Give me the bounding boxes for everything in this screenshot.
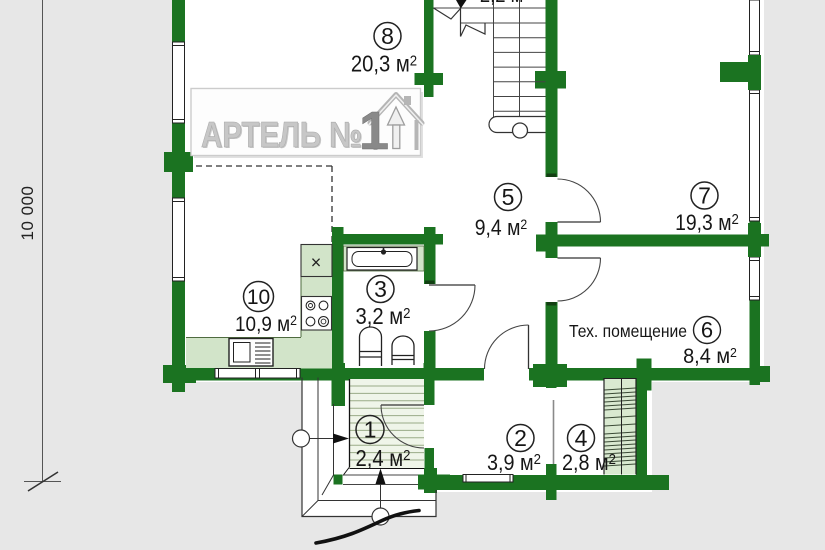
svg-text:3: 3	[374, 276, 387, 302]
svg-text:2,2 м2: 2,2 м2	[480, 0, 530, 7]
svg-text:АРТЕЛЬ №: АРТЕЛЬ №	[201, 114, 362, 155]
svg-text:7: 7	[698, 183, 711, 209]
svg-text:3,2 м2: 3,2 м2	[355, 303, 410, 330]
svg-text:1: 1	[359, 101, 389, 161]
svg-text:10,9 м2: 10,9 м2	[235, 312, 297, 336]
svg-text:10 000: 10 000	[18, 186, 37, 241]
svg-text:9,4 м2: 9,4 м2	[475, 216, 527, 240]
svg-text:8,4 м2: 8,4 м2	[683, 345, 737, 369]
svg-text:Тех. помещение: Тех. помещение	[569, 321, 687, 341]
svg-text:20,3 м2: 20,3 м2	[351, 50, 417, 77]
svg-text:2,8 м2: 2,8 м2	[562, 450, 616, 475]
svg-text:2,4 м2: 2,4 м2	[355, 445, 410, 472]
svg-text:8: 8	[381, 23, 394, 49]
svg-text:5: 5	[502, 184, 515, 210]
svg-text:2: 2	[514, 425, 527, 451]
svg-text:4: 4	[575, 425, 588, 451]
svg-text:1: 1	[364, 417, 377, 443]
svg-text:6: 6	[701, 318, 713, 343]
svg-text:10: 10	[247, 286, 270, 309]
svg-text:3,9 м2: 3,9 м2	[487, 450, 541, 475]
svg-text:19,3 м2: 19,3 м2	[675, 210, 739, 235]
svg-text:×: ×	[311, 253, 322, 273]
